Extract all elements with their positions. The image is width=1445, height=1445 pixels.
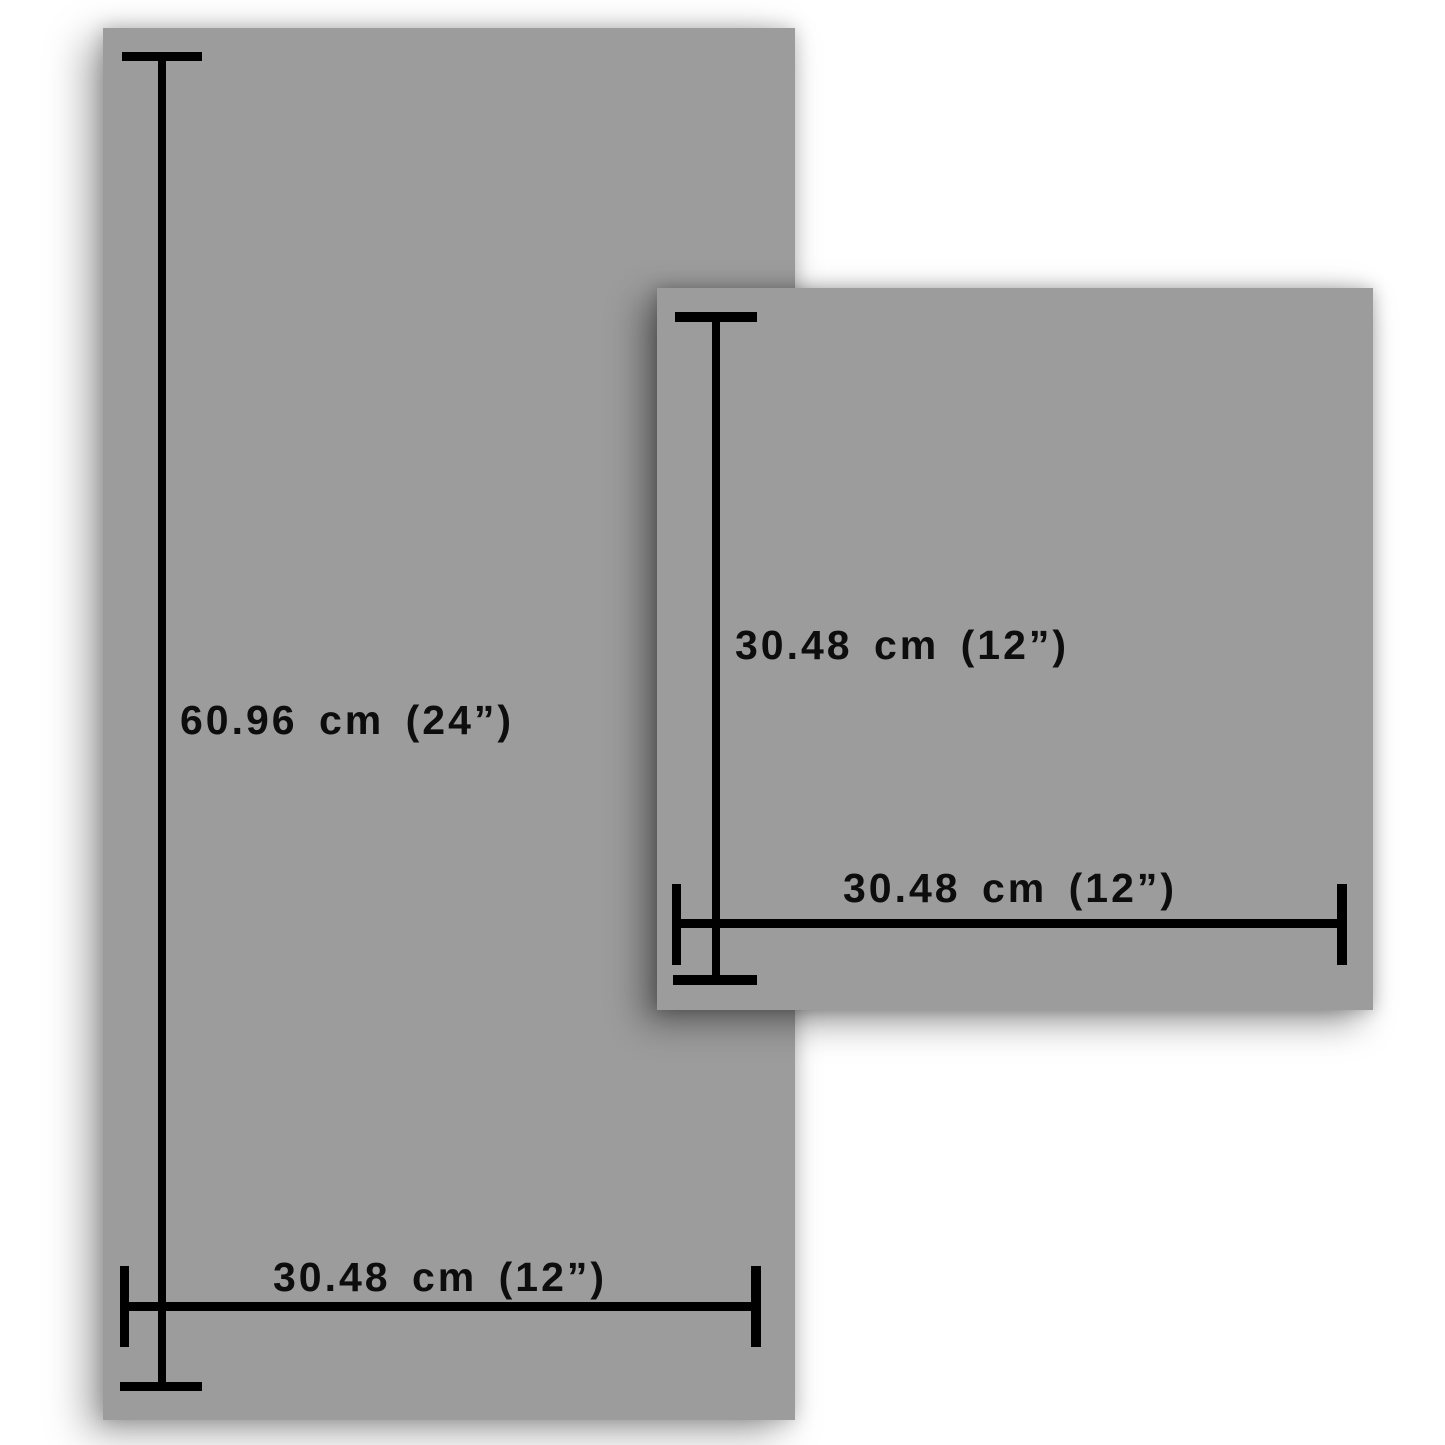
square-height-dim-top-cap — [675, 312, 757, 322]
square-height-dim-bottom-cap — [673, 975, 757, 985]
tall-height-label: 60.96 cm (24”) — [180, 700, 514, 741]
square-width-dim-line — [672, 919, 1346, 928]
tall-width-label: 30.48 cm (12”) — [120, 1257, 760, 1298]
tall-width-dim-line — [121, 1302, 760, 1311]
tall-height-dim-line — [158, 55, 166, 1388]
tall-height-dim-bottom-cap — [120, 1382, 202, 1391]
tall-height-dim-top-cap — [122, 52, 202, 61]
dimension-diagram: 60.96 cm (24”) 30.48 cm (12”) 30.48 cm (… — [0, 0, 1445, 1445]
square-width-label: 30.48 cm (12”) — [672, 868, 1348, 909]
square-height-label: 30.48 cm (12”) — [735, 625, 1069, 666]
